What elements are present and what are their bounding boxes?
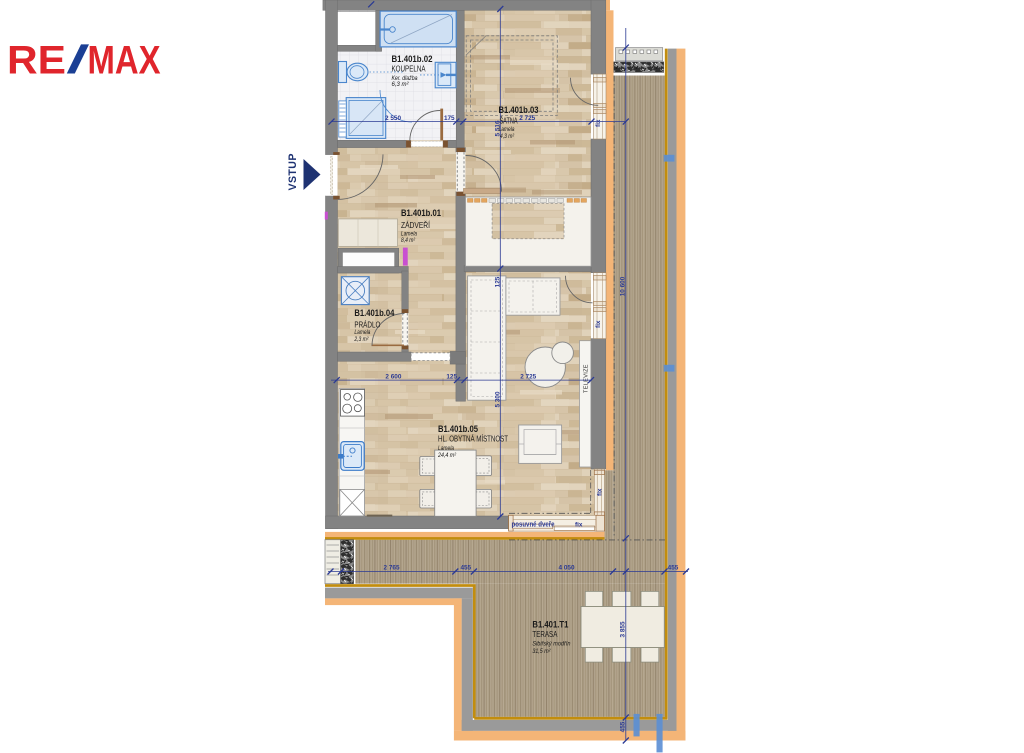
svg-text:125: 125 xyxy=(495,276,502,287)
svg-text:24,4 m²: 24,4 m² xyxy=(437,452,457,459)
svg-text:TERASA: TERASA xyxy=(532,630,558,639)
svg-text:fix: fix xyxy=(595,119,602,127)
svg-text:HL. OBYTNÁ MÍSTNOST: HL. OBYTNÁ MÍSTNOST xyxy=(438,435,508,444)
svg-text:2 725: 2 725 xyxy=(519,115,535,122)
svg-text:31,5 m²: 31,5 m² xyxy=(532,648,551,655)
svg-text:2 550: 2 550 xyxy=(385,115,401,122)
svg-text:175: 175 xyxy=(444,115,455,122)
svg-text:fix: fix xyxy=(575,522,583,529)
svg-text:VSTUP: VSTUP xyxy=(287,153,299,190)
svg-text:B1.401b.03: B1.401b.03 xyxy=(499,105,539,115)
svg-text:2,3 m²: 2,3 m² xyxy=(354,336,369,343)
svg-text:455: 455 xyxy=(460,565,471,572)
svg-text:ZÁDVEŘÍ: ZÁDVEŘÍ xyxy=(401,221,431,230)
svg-text:455: 455 xyxy=(619,721,626,732)
svg-text:B1.401b.05: B1.401b.05 xyxy=(438,424,478,434)
svg-text:2 600: 2 600 xyxy=(385,373,401,380)
svg-text:125: 125 xyxy=(446,373,457,380)
svg-text:6,3 m²: 6,3 m² xyxy=(392,81,410,88)
svg-text:4 050: 4 050 xyxy=(559,565,575,572)
svg-text:3 855: 3 855 xyxy=(619,621,626,637)
svg-text:455: 455 xyxy=(668,565,679,572)
svg-text:fix: fix xyxy=(597,488,604,496)
svg-text:Sibiřský modřín: Sibiřský modřín xyxy=(532,640,570,647)
svg-text:2 725: 2 725 xyxy=(520,373,536,380)
svg-text:B1.401b.02: B1.401b.02 xyxy=(392,54,433,64)
svg-text:posuvné dveře: posuvné dveře xyxy=(512,520,555,529)
svg-text:5 300: 5 300 xyxy=(495,391,502,407)
svg-text:Lamela: Lamela xyxy=(438,445,454,452)
svg-text:MAX: MAX xyxy=(88,39,161,83)
svg-text:4,3 m²: 4,3 m² xyxy=(500,133,515,140)
svg-text:RE: RE xyxy=(7,39,66,83)
svg-text:B1.401.T1: B1.401.T1 xyxy=(532,619,568,629)
svg-text:2 765: 2 765 xyxy=(384,565,400,572)
svg-text:10 600: 10 600 xyxy=(619,276,626,296)
svg-text:TELEVIZE: TELEVIZE xyxy=(584,364,590,393)
svg-text:B1.401b.04: B1.401b.04 xyxy=(354,308,394,318)
svg-text:B1.401b.01: B1.401b.01 xyxy=(401,208,441,218)
svg-text:fix: fix xyxy=(595,320,602,328)
svg-text:ŠATNA: ŠATNA xyxy=(500,116,518,125)
svg-text:KOUPELNA: KOUPELNA xyxy=(392,65,427,74)
svg-text:8,4 m²: 8,4 m² xyxy=(401,237,416,244)
